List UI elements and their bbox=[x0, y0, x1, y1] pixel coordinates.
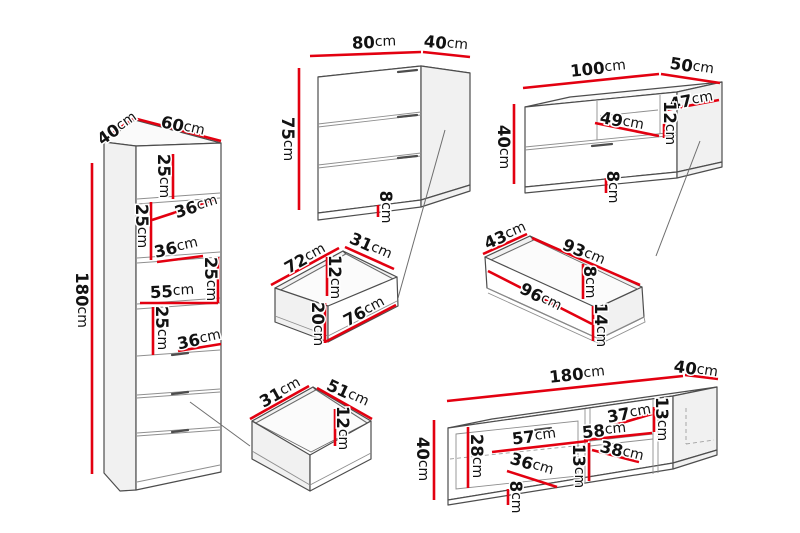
dimension-label-tv-stand-180-1: 40cm bbox=[673, 356, 720, 382]
dimension-label-tv-stand-180-2: 40cm bbox=[414, 437, 433, 481]
dimension-label-chest-of-drawers-0: 80cm bbox=[352, 32, 397, 53]
dimension-label-tv-bench-5: 12cm bbox=[661, 101, 680, 145]
dimension-label-tv-stand-180-0: 180cm bbox=[548, 362, 605, 387]
dimension-label-tv-stand-180-3: 28cm bbox=[468, 434, 487, 478]
dimension-label-chest-of-drawers-1: 40cm bbox=[423, 31, 469, 55]
dimension-label-drawer-72x31-4: 20cm bbox=[309, 302, 328, 346]
dimension-label-drawer-51x31-2: 12cm bbox=[334, 406, 353, 450]
dimension-label-tv-stand-180-11: 8cm bbox=[507, 481, 526, 514]
diagram-canvas: 40cm60cm180cm25cm36cm25cm36cm25cm55cm25c… bbox=[0, 0, 800, 533]
dimension-label-tall-cabinet-2: 180cm bbox=[73, 272, 92, 328]
dimension-label-tall-cabinet-9: 25cm bbox=[153, 306, 172, 350]
furniture-dimensions-diagram: 40cm60cm180cm25cm36cm25cm36cm25cm55cm25c… bbox=[0, 0, 800, 533]
dimension-label-tv-stand-180-7: 13cm bbox=[653, 397, 672, 441]
dimension-label-tall-cabinet-5: 25cm bbox=[133, 204, 152, 248]
dimension-label-tv-bench-6: 8cm bbox=[604, 171, 623, 204]
dimension-label-drawer-93x43-4: 14cm bbox=[592, 303, 611, 347]
dimension-label-tall-cabinet-3: 25cm bbox=[155, 154, 174, 198]
dimension-label-chest-of-drawers-3: 8cm bbox=[377, 191, 396, 224]
dimension-label-tv-bench-2: 40cm bbox=[495, 125, 514, 169]
dimension-label-drawer-72x31-2: 12cm bbox=[326, 255, 345, 299]
dimension-label-tv-stand-180-9: 13cm bbox=[570, 444, 589, 488]
dimension-label-drawer-93x43-3: 8cm bbox=[581, 266, 600, 299]
dimension-label-chest-of-drawers-2: 75cm bbox=[279, 117, 298, 161]
dimension-label-tall-cabinet-7: 25cm bbox=[202, 257, 221, 301]
dimension-label-tv-bench-0: 100cm bbox=[569, 56, 626, 81]
